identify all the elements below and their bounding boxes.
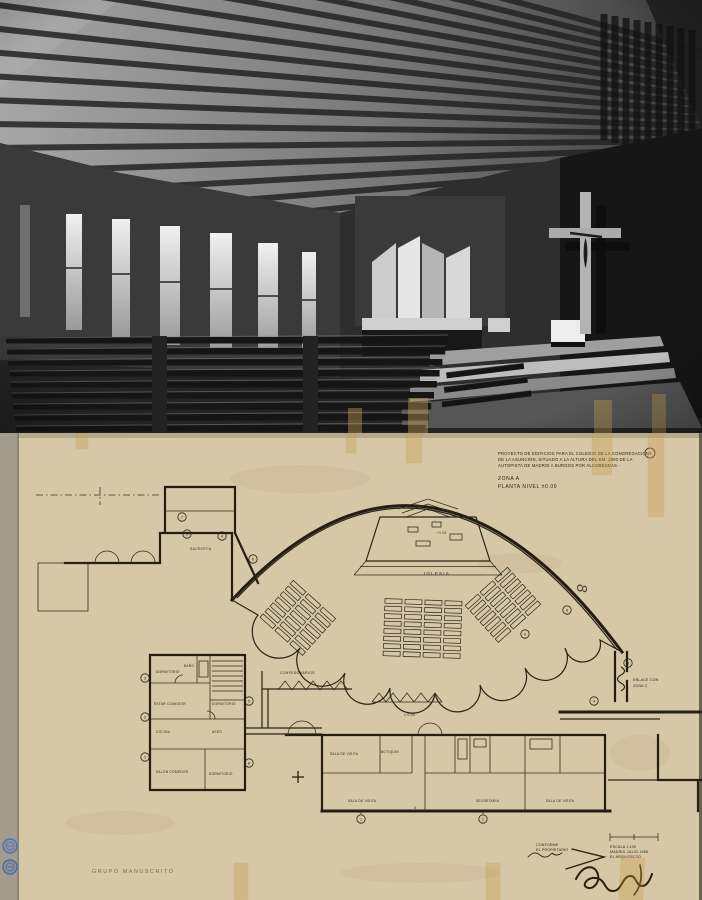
confesonarios-label: CONFESONARIOS bbox=[280, 671, 315, 675]
salon-comedor-label: SALON COMEDOR bbox=[156, 770, 189, 774]
sala-visita-3-label: SALA DE VISITA bbox=[546, 799, 575, 803]
iglesia-label: IGLESIA bbox=[424, 571, 450, 576]
escala-label: ESCALA 1:100 bbox=[610, 845, 636, 849]
enlace-label-1: ENLACE CON bbox=[633, 678, 659, 682]
bano-label: BAÑO bbox=[184, 663, 194, 668]
church-photo bbox=[0, 0, 702, 433]
scan-margin bbox=[0, 433, 18, 900]
title-line-2: DE LA ASUNCION, SITUADO A LA ALTURA DEL … bbox=[498, 457, 633, 462]
axis-ii-label: II bbox=[414, 806, 416, 810]
floor-plan: PROYECTO DE EDIFICIOS PARA EL COLEGIO DE… bbox=[0, 433, 702, 900]
photo-vignette bbox=[0, 0, 702, 433]
sala-visita-1-label: SALA DE VISITA bbox=[330, 752, 359, 756]
altar-level-label: +1.05 bbox=[437, 531, 447, 535]
dormitorio-c-label: DORMITORIO bbox=[209, 772, 233, 776]
fecha-label: MADRID-JULIO-1966 bbox=[610, 850, 648, 854]
pencil-numeral: 8 bbox=[573, 584, 590, 593]
archive-scan: PROYECTO DE EDIFICIOS PARA EL COLEGIO DE… bbox=[0, 0, 702, 900]
stamp-icon bbox=[3, 860, 17, 874]
zona-label: ZONA A bbox=[498, 476, 520, 482]
dormitorio-a-label: DORMITORIO bbox=[156, 670, 180, 674]
pencil-note: GRUPO MANUSCRITO bbox=[92, 869, 175, 875]
dormitorio-b-label: DORMITORIO bbox=[212, 702, 236, 706]
planta-label: PLANTA NIVEL ±0.00 bbox=[498, 484, 557, 490]
title-line-1: PROYECTO DE EDIFICIOS PARA EL COLEGIO DE… bbox=[498, 451, 649, 456]
propietario-label: EL PROPIETARIO bbox=[536, 848, 568, 852]
aseo-label: ASEO bbox=[212, 730, 222, 734]
nave-level-label: ± 0.00 bbox=[404, 713, 415, 717]
botiquin-label: BOTIQUIN bbox=[381, 750, 399, 754]
estar-comedor-label: ESTAR COMEDOR bbox=[154, 702, 186, 706]
stamp-icon bbox=[3, 839, 17, 853]
conforme-label: CONFORME bbox=[536, 843, 559, 847]
cocina-label: COCINA bbox=[156, 730, 171, 734]
secretaria-label: SECRETARIA bbox=[476, 799, 500, 803]
sala-visita-2-label: SALA DE VISITA bbox=[348, 799, 377, 803]
sacristia-label: SACRISTIA bbox=[190, 547, 212, 551]
enlace-label-2: ZONA C bbox=[633, 684, 648, 688]
